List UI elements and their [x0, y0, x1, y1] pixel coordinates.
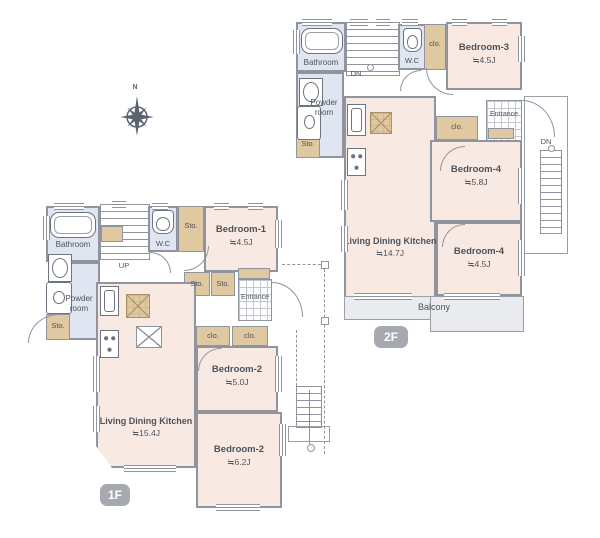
floor-badge-1f: 1F: [100, 484, 130, 506]
f1-storage-b-label: Sto.: [211, 280, 235, 288]
f1-ldk-label: Living Dining Kitchen ≒15.4J: [96, 416, 196, 439]
floor-badge-2f: 2F: [374, 326, 408, 348]
f1-window: [214, 203, 229, 210]
f1-closet-a-label: clo.: [196, 332, 230, 340]
f1-window: [279, 424, 286, 456]
overhang-post-marker: [321, 261, 329, 269]
f2-closet-top-label: clo.: [423, 40, 447, 48]
f1-bathroom-label: Bathroom: [46, 240, 100, 250]
f2-balcony-label: Balcony: [374, 302, 494, 313]
f2-bathtub-icon: [301, 28, 343, 54]
f1-window: [216, 504, 260, 511]
room-name: Bedroom-2: [196, 444, 282, 456]
f2-window: [518, 36, 525, 62]
f2-window: [293, 30, 300, 54]
f1-toilet-icon: [152, 210, 174, 234]
overhang-dash-left: [296, 330, 297, 386]
room-size: ≒15.4J: [96, 428, 196, 439]
f2-toilet-icon: [403, 28, 422, 52]
f2-wc-label: W.C: [398, 57, 426, 65]
room-size: ≒4.5J: [204, 237, 278, 248]
overhang-dash-top: [282, 264, 326, 265]
f2-bedroom4b-label: Bedroom-4 ≒4.5J: [436, 246, 522, 270]
room-name: Living Dining Kitchen: [96, 416, 196, 427]
f2-powder-room-label: Powder room: [304, 98, 344, 117]
f2-stairs-dn-label: DN: [344, 70, 368, 78]
f1-powder-exterior-door-arc: [28, 314, 59, 343]
f1-island-icon: [136, 326, 162, 348]
f1-kitchen-sink-icon: [100, 286, 119, 316]
f2-window: [452, 19, 467, 26]
room-name: Bedroom-3: [446, 42, 522, 54]
f2-window: [518, 168, 525, 204]
f2-exterior-stairs: [540, 150, 562, 234]
f1-shoes-closet: [238, 268, 270, 279]
compass-north-label: N: [128, 84, 142, 92]
f1-stairs-up-label: UP: [110, 262, 138, 270]
f1-window: [54, 203, 84, 210]
f1-bathtub-icon: [50, 212, 96, 238]
f1-window: [93, 406, 100, 432]
f2-window: [402, 19, 418, 26]
overhang-post-marker: [321, 317, 329, 325]
f1-stair-marker: [307, 444, 315, 452]
room-name: Bedroom-1: [204, 224, 278, 236]
f1-storage-hall-label: Sto.: [178, 222, 204, 230]
room-size: ≒4.5J: [446, 55, 522, 66]
f2-kitchen-sink-icon: [347, 104, 366, 136]
f1-window: [43, 216, 50, 240]
f2-bedroom3-door-arc: [426, 68, 453, 95]
room-name: Living Dining Kitchen: [344, 236, 436, 247]
f1-window: [275, 356, 282, 392]
f2-window: [376, 19, 390, 26]
f2-window: [302, 19, 332, 26]
f2-bedroom3-label: Bedroom-3 ≒4.5J: [446, 42, 522, 66]
room-size: ≒6.2J: [196, 457, 282, 468]
f1-bedroom2b-label: Bedroom-2 ≒6.2J: [196, 444, 282, 468]
f2-stair-start-marker: [548, 145, 555, 152]
room-size: ≒5.8J: [430, 177, 522, 188]
f1-wc-door-arc: [150, 252, 171, 273]
f1-stair-centerline: [309, 390, 310, 444]
f2-inner-stair-marker: [367, 64, 374, 71]
f2-ldk-label: Living Dining Kitchen ≒14.7J: [344, 236, 436, 259]
f1-entrance-label: Entrance: [238, 294, 272, 302]
f1-counter-icon: [126, 294, 150, 318]
f2-window: [444, 293, 500, 300]
f2-closet-bedroom4-label: clo.: [436, 123, 478, 131]
f2-counter-icon: [370, 112, 392, 134]
f2-window: [341, 226, 348, 252]
f1-wc-label: W.C: [148, 240, 178, 248]
f1-bedroom1-label: Bedroom-1 ≒4.5J: [204, 224, 278, 248]
room-size: ≒4.5J: [436, 259, 522, 270]
f1-window: [112, 201, 126, 208]
f2-window: [492, 19, 507, 26]
overhang-dash-right: [324, 264, 325, 454]
f2-stove-icon: [347, 148, 366, 176]
f1-powder-room-label: Powder room: [60, 294, 98, 313]
f1-window: [124, 465, 176, 472]
room-size: ≒5.0J: [196, 377, 278, 388]
f1-window: [248, 203, 263, 210]
f1-window: [275, 220, 282, 248]
f2-window: [341, 180, 348, 210]
f2-window: [518, 240, 525, 276]
f1-understairs-storage: [101, 226, 123, 242]
room-name: Bedroom-4: [436, 246, 522, 258]
f2-bathroom-label: Bathroom: [296, 58, 346, 68]
f2-entrance-label: Entrance: [486, 111, 522, 119]
f2-storage-label: Sto.: [296, 140, 320, 148]
f1-closet-b-label: clo.: [232, 332, 268, 340]
floor-plan-canvas: N: [0, 0, 600, 538]
f1-entrance-door-arc: [272, 282, 303, 317]
f1-stove-icon: [100, 330, 119, 358]
f1-window: [152, 203, 168, 210]
f2-wc-door-arc: [400, 70, 421, 91]
f1-window: [93, 356, 100, 392]
f2-window: [354, 293, 412, 300]
room-size: ≒14.7J: [344, 248, 436, 259]
f2-window: [350, 19, 368, 26]
f2-exterior-stairs-dn-label: DN: [534, 138, 558, 146]
f1-washing-machine-icon: [48, 254, 72, 282]
compass-icon: [116, 96, 158, 138]
f2-shoes-closet: [488, 128, 514, 139]
f1-storage-a-label: Sto.: [184, 280, 210, 288]
